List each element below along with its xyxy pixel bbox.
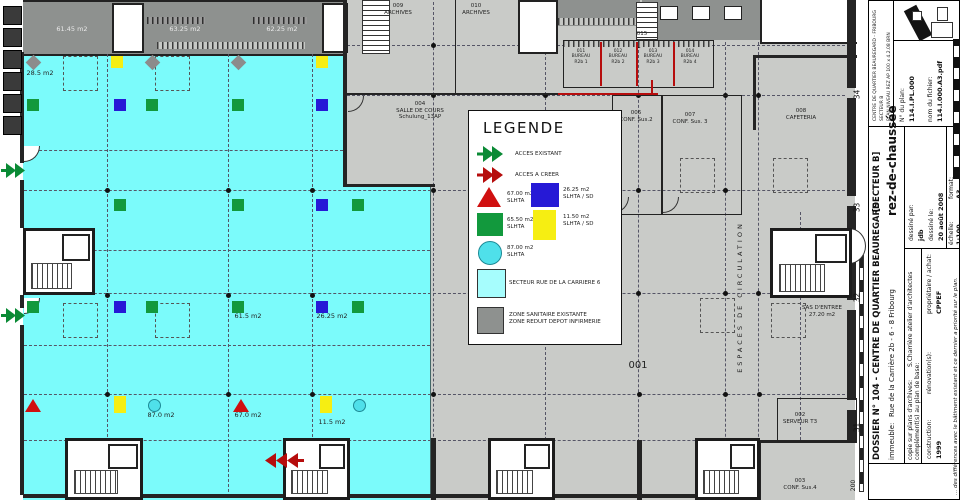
room-label: 002 SERVEUR T3: [783, 412, 817, 425]
new-wall-red: [673, 42, 675, 86]
tb-immeuble-label: immeuble:: [888, 423, 896, 460]
void-top-right: [760, 0, 857, 44]
grid-line-h: [347, 95, 845, 96]
grid-node: [756, 93, 761, 98]
furniture-zone-dashed: [63, 56, 98, 91]
grid-node: [226, 188, 231, 193]
balcony-block: [3, 28, 22, 47]
wall: [455, 0, 456, 93]
legend-cyan-circle-label: 87.00 m2 SLHTA: [507, 245, 533, 260]
wall-stub: [431, 438, 436, 500]
balcony-block: [3, 6, 22, 25]
tb-construction-label: construction:: [926, 420, 933, 459]
grid-node: [105, 293, 110, 298]
stair-core-bottom-4: [695, 438, 760, 500]
legend-acces-creer-label: ACCES A CREER: [515, 172, 559, 179]
stall-wall-hatch: [147, 17, 205, 24]
legend-green-square: [477, 213, 503, 236]
grid-node: [431, 43, 436, 48]
tb-proprietaire-label: propriétaire / achat:: [926, 254, 933, 314]
grid-node: [723, 392, 728, 397]
grid-node: [431, 392, 436, 397]
stall-wall-hatch: [558, 18, 638, 25]
grid-node: [226, 293, 231, 298]
room-label: 004 SALLE DE COURS Schulung_13AP: [396, 101, 444, 121]
grid-node: [636, 291, 641, 296]
tb-echelle: 1:100: [955, 224, 960, 245]
legend-red-triangle-label: 67.00 m2 SLHTA: [507, 191, 533, 206]
wall-right: [847, 98, 856, 196]
room-label: 006 CONF. Sus.2: [619, 110, 652, 123]
wall-cafeteria-top: [753, 55, 857, 58]
grid-line-h: [24, 293, 845, 294]
room-label: 012 BUREAU R2b 2: [609, 49, 628, 65]
tb-format: A3: [955, 189, 960, 199]
tb-format-label: format:: [948, 177, 955, 199]
marker-green-square: [232, 199, 244, 211]
grid-node: [310, 188, 315, 193]
legend-sector-label: SECTEUR RUE DE LA CARRIERE 6: [509, 280, 600, 287]
acces-existant-arrow-icon: [477, 145, 507, 163]
plan-area: 200 61.45 m263.25 m262.25 m228.5 m2009 A…: [0, 0, 868, 500]
tb-dessine-le: 20 août 2008: [937, 193, 945, 241]
tb-floor: rez-de-chaussée: [885, 105, 899, 216]
new-wall-red: [600, 42, 602, 86]
sector-rue-de-la-carriere-zone-ext: [345, 187, 430, 500]
marker-green-square: [27, 301, 39, 313]
marker-green-square: [27, 99, 39, 111]
grid-line-v: [312, 54, 313, 497]
stair-core-bottom-1: [65, 438, 143, 500]
grid-node: [637, 392, 642, 397]
wc-fixture: [724, 6, 742, 20]
legend-blue-square: [531, 183, 559, 207]
wall-right: [847, 310, 856, 400]
tb-copie: S.Charrière atelier d'architectes: [907, 272, 914, 367]
elevator-shaft: [112, 3, 144, 53]
marker-yellow-square: [320, 396, 332, 413]
room-label: 010 ARCHIVES: [462, 3, 490, 16]
tb-plan-no: 114.I.PL.000: [908, 76, 916, 122]
marker-green-square: [352, 199, 364, 211]
wall-right: [847, 0, 856, 88]
tb-dessine-le-label: dessiné le:: [928, 209, 935, 241]
site-key-plan: [895, 1, 959, 41]
stall-wall-hatch: [157, 42, 305, 49]
legend-red-triangle: [477, 187, 501, 207]
balcony-block: [3, 72, 22, 91]
grid-line-v: [433, 2, 434, 497]
key-plan-building-outline: [937, 7, 948, 21]
room-label: 61.45 m2: [56, 26, 87, 34]
marker-green-square: [146, 99, 158, 111]
floor-plan-sheet: 200 61.45 m263.25 m262.25 m228.5 m2009 A…: [0, 0, 960, 500]
wc-fixture: [692, 6, 710, 20]
room-label: 007 CONF. Sus. 3: [673, 112, 708, 125]
grid-line-v: [228, 54, 229, 497]
room-label: 67.0 m2: [234, 412, 261, 420]
acces-a-creer-arrow: [264, 452, 304, 473]
tb-proprietaire: CPPEF: [935, 291, 943, 314]
tb-sector: [SECTEUR B]: [872, 152, 882, 212]
tb-construction: 1999: [935, 441, 943, 459]
room-label: 014 BUREAU R2b 4: [681, 49, 700, 65]
tb-file: 114.I.000.A3.pdf: [936, 61, 944, 122]
wall-stub: [637, 440, 642, 500]
marker-green-square: [146, 301, 158, 313]
room-label: 009 ARCHIVES: [384, 3, 412, 16]
grid-node: [105, 188, 110, 193]
tb-dessine-par-label: dessiné par:: [908, 204, 915, 241]
legend-blue-square-label: 26.25 m2 SLHTA / SD: [563, 187, 593, 202]
balcony-block: [3, 94, 22, 113]
marker-blue-square: [114, 99, 126, 111]
tb-divider: [946, 127, 947, 249]
acces-existant-arrow: [1, 162, 27, 183]
tb-divider: [904, 248, 960, 249]
legend-sanitaire-label: ZON​E SANITAIRE EXISTANTE ZONE REDUIT DE…: [509, 312, 601, 327]
tb-file-label: nom du fichier:: [927, 77, 934, 122]
wall-cafeteria-left: [753, 55, 756, 130]
legend-sector-square: [477, 269, 506, 298]
grid-axis-label: 33: [852, 203, 861, 213]
furniture-zone-dashed: [155, 56, 190, 91]
grid-line-v: [758, 42, 759, 497]
grid-node: [756, 291, 761, 296]
room-label: ESPACES DE CIRCULATION: [737, 221, 745, 373]
scale-ruler-label: 200: [850, 480, 857, 491]
marker-cyan-circle: [353, 399, 366, 412]
legend-yellow-square-label: 11.50 m2 SLHTA / SD: [563, 214, 593, 229]
tb-graphic-scale: [953, 39, 960, 179]
title-block: DOSSIER N° 104 - CENTRE DE QUARTIER BEAU…: [868, 0, 960, 500]
tb-divider: [869, 463, 960, 464]
furniture-zone-dashed: [155, 303, 190, 338]
tb-plan-no-label: N° du plan:: [899, 88, 906, 122]
legend-cyan-circle: [478, 241, 502, 265]
new-wall-red: [558, 93, 658, 95]
grid-line-v: [107, 54, 108, 497]
wall-left: [20, 325, 24, 495]
wall: [345, 93, 580, 95]
grid-node: [757, 392, 762, 397]
room-label: 011 BUREAU R2b 1: [572, 49, 591, 65]
stall-wall-hatch: [253, 17, 307, 24]
tb-copie-label: copie sur plans d'archives:: [907, 380, 914, 460]
legend-green-square-label: 65.50 m2 SLHTA: [507, 217, 533, 232]
grid-axis-label: 31: [852, 423, 861, 433]
wc-fixture: [660, 6, 678, 20]
grid-node: [226, 392, 231, 397]
wall-left: [20, 180, 24, 228]
grid-node: [723, 291, 728, 296]
stair-core-bottom-3: [488, 438, 555, 500]
room-label: 11.5 m2: [318, 419, 345, 427]
balcony-block: [3, 116, 22, 135]
grid-node: [105, 392, 110, 397]
balcony-block: [3, 50, 22, 69]
new-wall-red: [636, 42, 638, 86]
tb-project-line-3: PLAN NIVEAU REZ AP 100 x 4.2.08 BRN: [887, 32, 894, 121]
tb-renovation-label: rénovation(s):: [926, 352, 933, 394]
room-label: 62.25 m2: [266, 26, 297, 34]
key-plan-building-outline: [912, 11, 922, 21]
stair-core-left: [23, 228, 95, 295]
tb-dossier: DOSSIER N° 104 - CENTRE DE QUARTIER BEAU…: [872, 202, 882, 460]
tb-immeuble: Rue de la Carrière 2b - 6 - 8 Fribourg: [888, 289, 896, 417]
furniture-zone-dashed: [700, 298, 735, 333]
tb-complement-label: complément(s) au plan de base:: [914, 363, 921, 460]
marker-blue-square: [316, 199, 328, 211]
legend-sanitaire-square: [477, 307, 504, 334]
new-wall-red: [651, 80, 653, 95]
room-label: 63.25 m2: [169, 26, 200, 34]
room-label: 28.5 m2: [26, 70, 53, 78]
legend-box: LEGENDE ACCES EXISTANT ACCES A CREER 67.…: [468, 110, 622, 345]
grid-line-h: [24, 150, 343, 151]
grid-axis-label: 34: [852, 90, 861, 100]
tb-dessine-par: jdb: [917, 229, 925, 241]
marker-blue-square: [316, 99, 328, 111]
room-label: 61.5 m2: [234, 313, 261, 321]
core-shaft: [518, 0, 558, 54]
wall: [343, 184, 435, 187]
marker-green-square: [352, 301, 364, 313]
room-label: 001: [628, 360, 647, 372]
marker-green-square: [232, 99, 244, 111]
marker-red-triangle: [25, 399, 41, 412]
acces-a-creer-arrow-icon: [477, 166, 507, 184]
acces-existant-arrow: [1, 307, 27, 328]
room-label: 003 CONF. Sus.4: [783, 478, 816, 491]
room-label: SAS D'ENTREE 27.20 m2: [802, 305, 842, 318]
scale-ruler: [859, 255, 864, 492]
marker-yellow-square: [316, 56, 328, 68]
tb-project-line-2: SECTEUR B: [880, 96, 887, 121]
stair-core-sas: [770, 228, 852, 298]
key-plan-building-outline: [931, 22, 953, 38]
furniture-zone-dashed: [771, 303, 806, 338]
furniture-zone-dashed: [773, 158, 808, 193]
tb-divider: [921, 249, 922, 464]
grid-node: [431, 188, 436, 193]
marker-green-square: [114, 199, 126, 211]
grid-node: [310, 392, 315, 397]
marker-yellow-square: [111, 56, 123, 68]
room-label: 26.25 m2: [316, 313, 347, 321]
grid-node: [310, 293, 315, 298]
room-label: 87.0 m2: [147, 412, 174, 420]
tb-footnote: ... des différences avec le bâtiment exi…: [953, 277, 959, 495]
marker-blue-square: [114, 301, 126, 313]
room-label: 015: [637, 31, 648, 38]
marker-yellow-square: [114, 396, 126, 413]
tb-echelle-label: échelle:: [948, 221, 955, 245]
furniture-zone-dashed: [63, 303, 98, 338]
grid-line-h: [24, 345, 430, 346]
tb-divider: [904, 127, 905, 464]
legend-yellow-square: [533, 210, 556, 240]
tb-project-line-1: CENTRE DE QUARTIER BEAUREGARD - FRIBOURG: [873, 10, 880, 121]
grid-axis-label: 32: [852, 293, 861, 303]
room-label: 013 BUREAU R2b 3: [644, 49, 663, 65]
legend-acces-existant-label: ACCES EXISTANT: [515, 151, 562, 158]
legend-title: LEGENDE: [483, 119, 565, 137]
room-label: 008 CAFETERIA: [786, 108, 816, 121]
